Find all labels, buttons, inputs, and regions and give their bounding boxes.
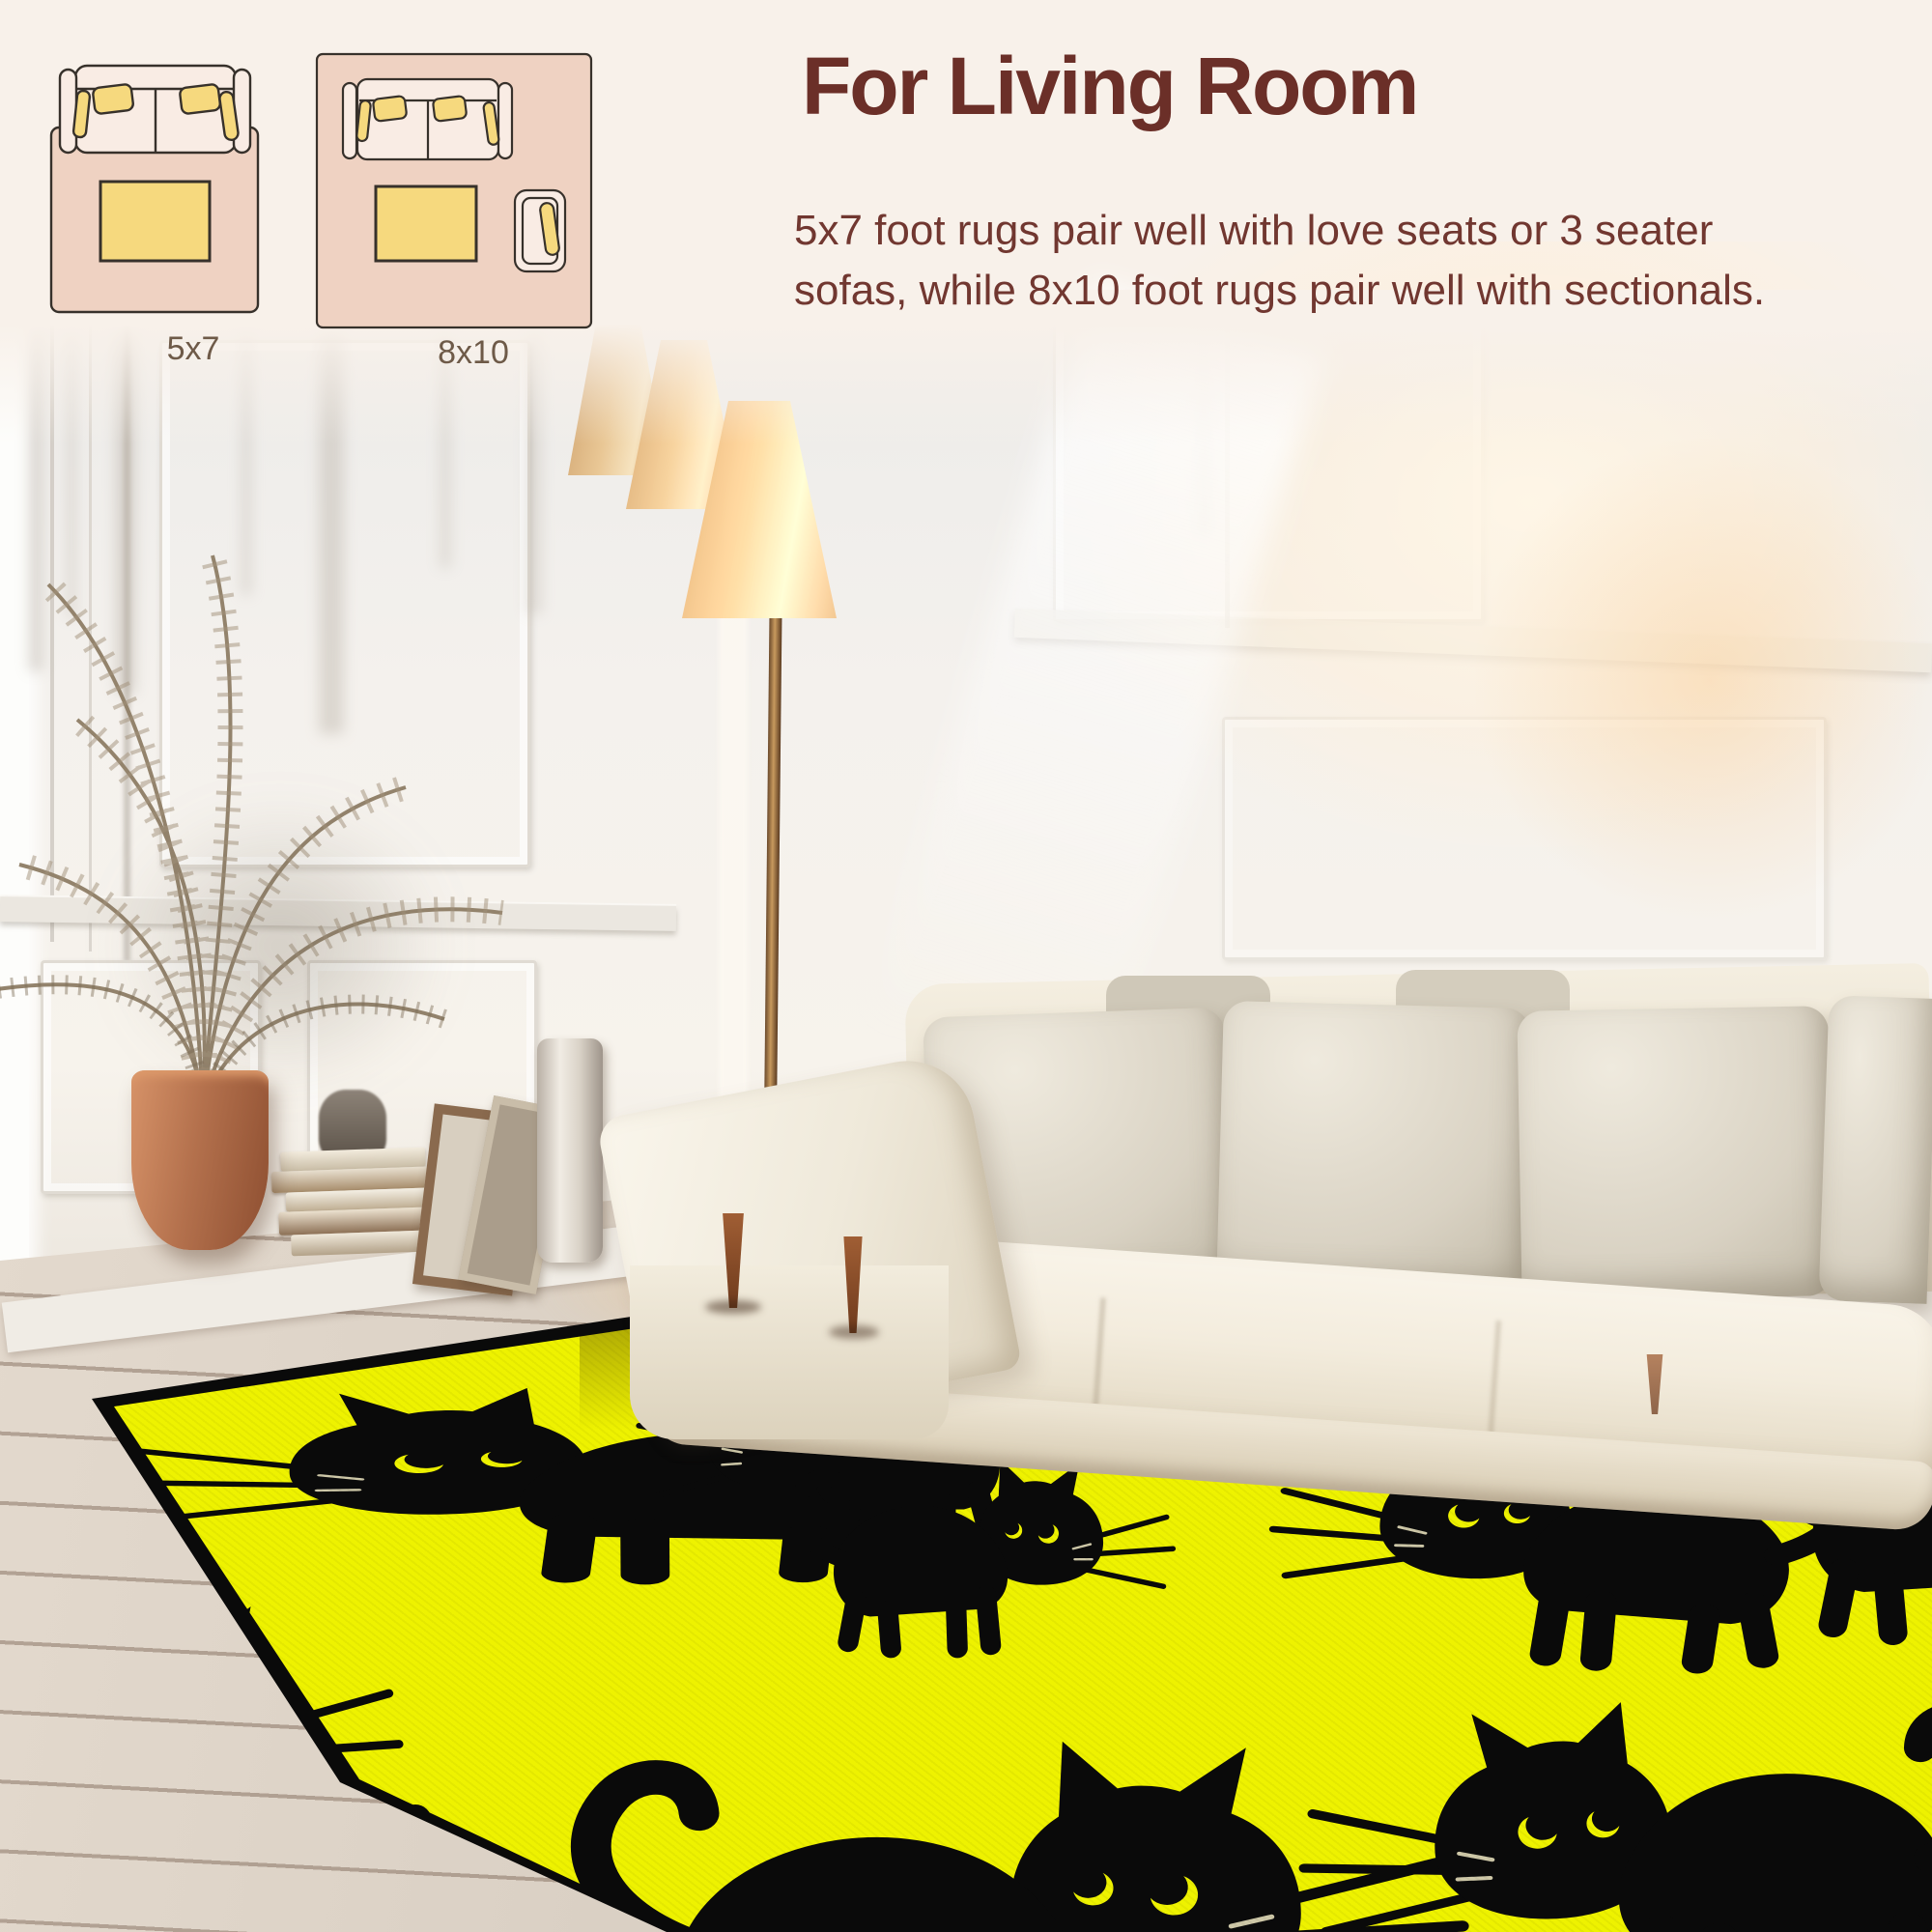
diagram-pillow xyxy=(93,84,134,115)
sofa xyxy=(580,947,1932,1488)
rug-cat-tail xyxy=(0,1821,415,1908)
diagram-sofa-arm xyxy=(498,83,512,158)
diagram-sofa-arm xyxy=(60,70,76,153)
leg-contact-shadow xyxy=(705,1300,761,1314)
book xyxy=(291,1230,433,1256)
diagram-sofa-arm xyxy=(343,83,356,158)
page-description: 5x7 foot rugs pair well with love seats … xyxy=(794,201,1924,321)
description-line-2: sofas, while 8x10 foot rugs pair well wi… xyxy=(794,261,1924,321)
diagram-pillow xyxy=(433,96,468,122)
diagram-coffee-table xyxy=(376,186,476,261)
plant-shadow-on-wall xyxy=(58,753,502,1140)
rug-size-diagrams xyxy=(0,0,676,444)
size-label-5x7: 5x7 xyxy=(135,330,251,368)
sofa-arm-front xyxy=(630,1265,949,1439)
diagram-8x10 xyxy=(317,54,591,327)
diagram-5x7 xyxy=(51,66,258,312)
leg-contact-shadow xyxy=(829,1325,879,1339)
size-label-8x10: 8x10 xyxy=(411,334,536,372)
plant-pot xyxy=(131,1070,269,1250)
product-marketing-image: 5x7 8x10 For Living Room 5x7 foot rugs p… xyxy=(0,0,1932,1932)
diagram-pillow xyxy=(180,84,221,115)
description-line-1: 5x7 foot rugs pair well with love seats … xyxy=(794,201,1924,261)
diagram-pillow xyxy=(373,96,408,122)
diagram-coffee-table xyxy=(100,182,210,261)
page-title: For Living Room xyxy=(802,41,1913,131)
